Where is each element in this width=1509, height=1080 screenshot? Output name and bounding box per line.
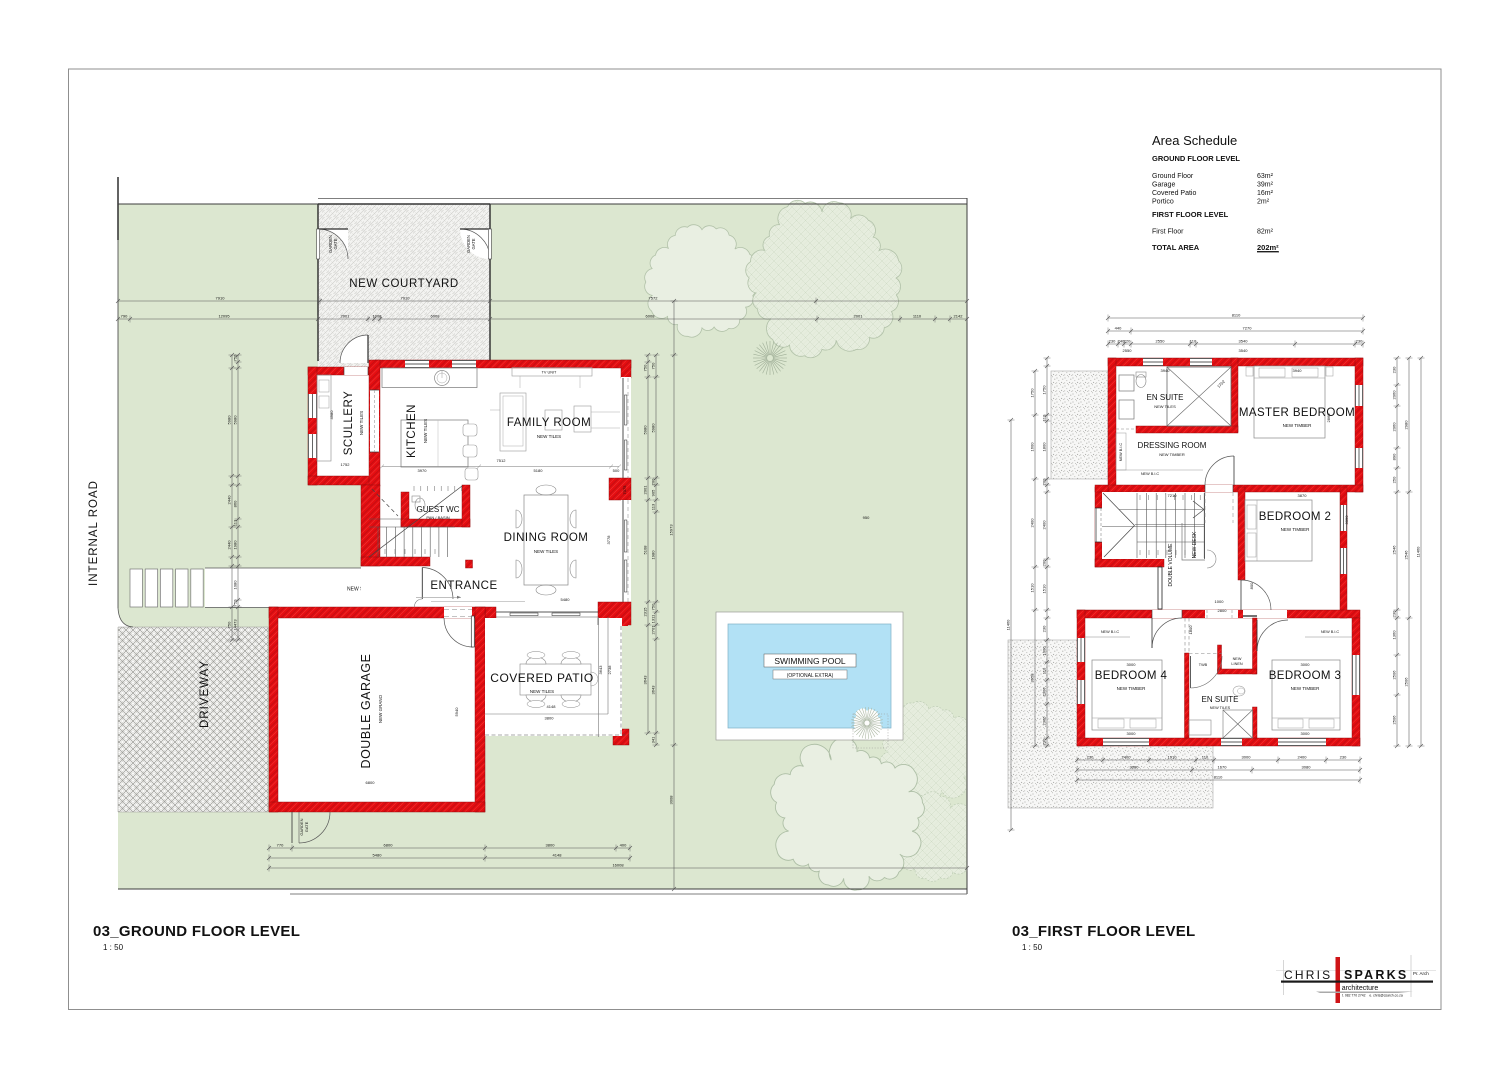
svg-text:3060: 3060 [1130,765,1140,770]
svg-text:EN SUITE: EN SUITE [1202,695,1239,704]
svg-text:NEW B.I.C: NEW B.I.C [1119,443,1123,462]
svg-text:230: 230 [1356,339,1363,344]
svg-text:3540: 3540 [1239,339,1249,344]
svg-text:5980: 5980 [227,415,232,425]
svg-text:3778: 3778 [606,535,611,545]
svg-text:440: 440 [1115,326,1122,331]
svg-text:NEW GRANO: NEW GRANO [378,694,383,723]
svg-text:200: 200 [1042,478,1047,485]
svg-text:FIRST FLOOR LEVEL: FIRST FLOOR LEVEL [1152,210,1229,219]
svg-text:(OPTIONAL EXTRA): (OPTIONAL EXTRA) [787,673,834,679]
svg-text:PAN / BASIN: PAN / BASIN [426,515,449,520]
svg-text:2980: 2980 [1404,420,1409,430]
svg-text:NEW: NEW [1233,657,1242,661]
svg-text:250: 250 [1392,476,1397,483]
svg-text:82m²: 82m² [1257,229,1274,236]
svg-text:3643: 3643 [643,675,648,685]
svg-text:790: 790 [121,314,128,319]
svg-text:1910: 1910 [1168,755,1178,760]
svg-text:TV UNIT: TV UNIT [542,371,557,375]
svg-text:03_GROUND FLOOR LEVEL: 03_GROUND FLOOR LEVEL [93,923,300,940]
svg-text:First Floor: First Floor [1152,229,1184,236]
svg-text:3080: 3080 [1302,765,1312,770]
svg-text:5980: 5980 [651,423,656,433]
svg-text:2001: 2001 [643,485,648,495]
svg-text:14473: 14473 [233,619,238,631]
svg-text:1360: 1360 [1392,630,1397,640]
svg-text:BEDROOM 4: BEDROOM 4 [1095,670,1168,682]
svg-text:2800: 2800 [1218,608,1228,613]
svg-text:KITCHEN: KITCHEN [406,404,418,458]
svg-text:NEW TILES: NEW TILES [530,689,554,694]
svg-text:GROUND FLOOR LEVEL: GROUND FLOOR LEVEL [1152,154,1240,163]
svg-text:3000: 3000 [1301,731,1311,736]
svg-text:1980: 1980 [651,550,656,560]
svg-text:GATE: GATE [333,238,338,249]
svg-text:2546: 2546 [1404,550,1409,560]
svg-text:3940: 3940 [1293,368,1303,373]
svg-text:6008: 6008 [431,314,441,319]
svg-text:750: 750 [651,362,656,369]
svg-text:15973: 15973 [669,524,674,536]
svg-text:3940: 3940 [1161,368,1171,373]
svg-text:341: 341 [651,736,656,743]
svg-text:230: 230 [1109,339,1116,344]
svg-text:TWB: TWB [1199,663,1208,667]
svg-text:2440: 2440 [227,495,232,505]
svg-text:200: 200 [1042,559,1047,566]
svg-text:Portico: Portico [1152,199,1174,206]
svg-text:230: 230 [1392,610,1397,617]
svg-text:Ground Floor: Ground Floor [1152,173,1194,180]
svg-text:DRESSING ROOM: DRESSING ROOM [1138,441,1207,450]
svg-text:230: 230 [1392,366,1397,373]
svg-text:5480: 5480 [373,853,383,858]
svg-text:1800: 1800 [1042,442,1047,452]
svg-text:200: 200 [651,478,656,485]
svg-text:950: 950 [863,515,870,520]
svg-text:4980: 4980 [329,410,334,420]
svg-text:5980: 5980 [643,425,648,435]
svg-text:1 : 50: 1 : 50 [1022,943,1043,952]
svg-text:2506: 2506 [1404,677,1409,687]
svg-text:4148: 4148 [547,704,557,709]
svg-text:2306: 2306 [1042,716,1047,726]
svg-text:750: 750 [233,599,238,606]
svg-text:2550: 2550 [1156,339,1166,344]
svg-text:1750: 1750 [1030,388,1035,398]
svg-text:16008: 16008 [612,863,624,868]
svg-text:SWIMMING POOL: SWIMMING POOL [774,656,846,666]
svg-text:1 : 50: 1 : 50 [103,943,124,952]
svg-text:7910: 7910 [401,296,411,301]
svg-text:Garage: Garage [1152,182,1175,189]
svg-text:6008: 6008 [646,314,656,319]
svg-text:750: 750 [227,621,232,628]
svg-text:5980: 5980 [233,415,238,425]
svg-text:1110: 1110 [913,314,922,319]
svg-text:INTERNAL ROAD: INTERNAL ROAD [88,480,100,586]
svg-text:NEW DESK: NEW DESK [1192,531,1198,558]
svg-text:03_FIRST FLOOR LEVEL: 03_FIRST FLOOR LEVEL [1012,923,1196,940]
svg-text:2001: 2001 [854,314,864,319]
svg-text:750: 750 [233,354,238,361]
svg-text:BEDROOM 3: BEDROOM 3 [1269,670,1342,682]
svg-text:2060: 2060 [1392,422,1397,432]
svg-text:3540: 3540 [1239,348,1249,353]
svg-text:GATE: GATE [304,821,309,832]
svg-text:2546: 2546 [1392,545,1397,555]
svg-text:110: 110 [1202,755,1209,760]
svg-text:NEW TIMBER: NEW TIMBER [1159,452,1185,457]
svg-text:2400: 2400 [1122,755,1132,760]
svg-text:6800: 6800 [384,843,394,848]
svg-text:400: 400 [620,843,627,848]
svg-text:DOUBLE VOLUME: DOUBLE VOLUME [1168,543,1174,587]
svg-text:5940: 5940 [454,707,459,717]
svg-text:1752: 1752 [341,462,351,467]
svg-text:NEW TIMBER: NEW TIMBER [1283,423,1312,428]
svg-text:5480: 5480 [561,597,571,602]
svg-text:2m²: 2m² [1257,199,1270,206]
svg-text:1000: 1000 [1042,646,1047,656]
svg-text:7075: 7075 [622,485,627,495]
svg-text:113: 113 [233,519,238,526]
svg-text:1750: 1750 [1042,385,1047,395]
svg-text:NEW B.I.C: NEW B.I.C [1141,472,1160,476]
svg-text:NEW COURTYARD: NEW COURTYARD [349,278,459,290]
svg-text:1600: 1600 [1030,442,1035,452]
svg-text:800: 800 [1249,582,1254,589]
svg-text:8110: 8110 [1232,313,1241,318]
svg-text:3000: 3000 [1301,662,1311,667]
svg-text:2400: 2400 [1298,755,1308,760]
svg-text:NEW TIMBER: NEW TIMBER [1291,686,1320,691]
svg-text:SPARKS: SPARKS [1344,968,1408,982]
svg-text:110: 110 [1190,339,1197,344]
svg-text:3000: 3000 [1127,662,1137,667]
svg-text:CHRIS: CHRIS [1284,968,1332,982]
svg-text:1510: 1510 [1042,584,1047,594]
svg-text:GATE: GATE [471,238,476,249]
svg-text:architecture: architecture [1342,985,1379,992]
svg-text:MASTER BEDROOM: MASTER BEDROOM [1239,407,1355,419]
svg-text:2506: 2506 [1392,670,1397,680]
svg-text:11460: 11460 [1416,546,1421,558]
svg-text:3970: 3970 [418,468,428,473]
svg-text:GUEST WC: GUEST WC [417,505,460,514]
svg-text:EN SUITE: EN SUITE [1147,393,1184,402]
svg-text:t. 082 770 2742 e. chris@cs: t. 082 770 2742 e. chris@csarch.co.za [1342,994,1403,998]
svg-text:SCULLERY: SCULLERY [343,391,355,456]
svg-text:3000: 3000 [1127,731,1137,736]
svg-text:2550: 2550 [1123,348,1133,353]
svg-text:3643: 3643 [598,665,603,675]
svg-text:7910: 7910 [216,296,226,301]
svg-text:2400: 2400 [1042,520,1047,530]
svg-text:Covered Patio: Covered Patio [1152,190,1196,197]
svg-text:NEW TILES: NEW TILES [534,549,558,554]
svg-text:3800: 3800 [545,716,555,721]
svg-text:2707: 2707 [651,625,656,635]
svg-text:2860: 2860 [1326,413,1331,423]
svg-text:NEW B.I.C: NEW B.I.C [1101,630,1120,634]
svg-text:2060: 2060 [1392,390,1397,400]
svg-text:16m²: 16m² [1257,190,1274,197]
svg-text:202m²: 202m² [1257,243,1279,252]
svg-text:110: 110 [1042,414,1047,421]
svg-text:NEW TIMBER: NEW TIMBER [1281,527,1310,532]
svg-text:860: 860 [233,500,238,507]
svg-text:2001: 2001 [341,314,351,319]
svg-text:2738: 2738 [607,665,612,675]
svg-text:3870: 3870 [1298,493,1308,498]
svg-text:7512: 7512 [497,458,507,463]
svg-text:Area Schedule: Area Schedule [1152,133,1237,148]
svg-text:7210: 7210 [1168,493,1178,498]
svg-text:Pr. Arch: Pr. Arch [1413,971,1429,976]
svg-text:3958: 3958 [1030,673,1035,683]
svg-text:1000: 1000 [1215,599,1225,604]
svg-text:1080: 1080 [233,580,238,590]
svg-text:39m²: 39m² [1257,182,1274,189]
svg-text:3008: 3008 [669,795,674,805]
svg-text:BEDROOM 2: BEDROOM 2 [1259,511,1332,523]
svg-text:2506: 2506 [1392,715,1397,725]
svg-text:ENTRANCE: ENTRANCE [430,580,497,592]
svg-text:110: 110 [1042,667,1047,674]
svg-text:905: 905 [651,489,656,496]
svg-text:4148: 4148 [553,853,563,858]
svg-text:11460: 11460 [1006,619,1011,631]
svg-text:500: 500 [613,468,620,473]
svg-text:12095: 12095 [218,314,230,319]
svg-text:NEW TILES: NEW TILES [1154,404,1176,409]
svg-text:750: 750 [643,364,648,371]
svg-text:NEW TILES: NEW TILES [423,419,428,443]
svg-text:NEW B.I.C: NEW B.I.C [1321,630,1340,634]
svg-text:2400: 2400 [1030,518,1035,528]
svg-text:FAMILY ROOM: FAMILY ROOM [507,417,591,429]
svg-text:1008: 1008 [373,314,383,319]
svg-text:750: 750 [651,603,656,610]
svg-text:2315: 2315 [643,607,648,617]
svg-text:113: 113 [651,503,656,510]
svg-text:5180: 5180 [534,468,544,473]
svg-text:1670: 1670 [1218,765,1228,770]
svg-text:5108: 5108 [643,545,648,555]
svg-text:1311: 1311 [651,614,656,623]
svg-text:2440: 2440 [227,540,232,550]
svg-text:7572: 7572 [649,296,659,301]
svg-text:DRIVEWAY: DRIVEWAY [199,660,211,728]
svg-text:NEW TILES: NEW TILES [537,434,561,439]
svg-text:LINEN: LINEN [1231,662,1242,666]
svg-text:230: 230 [1087,755,1094,760]
svg-text:1980: 1980 [233,540,238,550]
svg-text:2306: 2306 [1042,687,1047,697]
svg-text:2142: 2142 [954,314,964,319]
svg-text:230: 230 [1042,738,1047,745]
svg-text:1510: 1510 [1030,583,1035,593]
svg-text:3090: 3090 [1344,515,1349,525]
svg-text:NEW TILES: NEW TILES [359,411,364,435]
svg-text:220: 220 [1124,339,1131,344]
svg-text:DINING ROOM: DINING ROOM [504,532,589,544]
svg-text:3800: 3800 [546,843,556,848]
svg-text:1800: 1800 [1188,625,1193,635]
svg-text:890: 890 [1392,453,1397,460]
svg-text:230: 230 [1340,755,1347,760]
svg-text:TOTAL AREA: TOTAL AREA [1152,243,1200,252]
svg-text:3643: 3643 [651,685,656,695]
svg-text:7270: 7270 [1243,326,1253,331]
svg-text:3000: 3000 [1242,755,1252,760]
svg-text:DOUBLE GARAGE: DOUBLE GARAGE [359,654,373,769]
svg-text:NEW TIMBER: NEW TIMBER [1117,686,1146,691]
svg-text:6800: 6800 [366,780,376,785]
svg-text:8110: 8110 [1214,775,1223,780]
svg-text:NEW TILES: NEW TILES [1210,706,1231,710]
svg-text:COVERED PATIO: COVERED PATIO [490,671,593,685]
svg-text:63m²: 63m² [1257,173,1274,180]
svg-text:230: 230 [1042,625,1047,632]
svg-text:770: 770 [277,843,284,848]
